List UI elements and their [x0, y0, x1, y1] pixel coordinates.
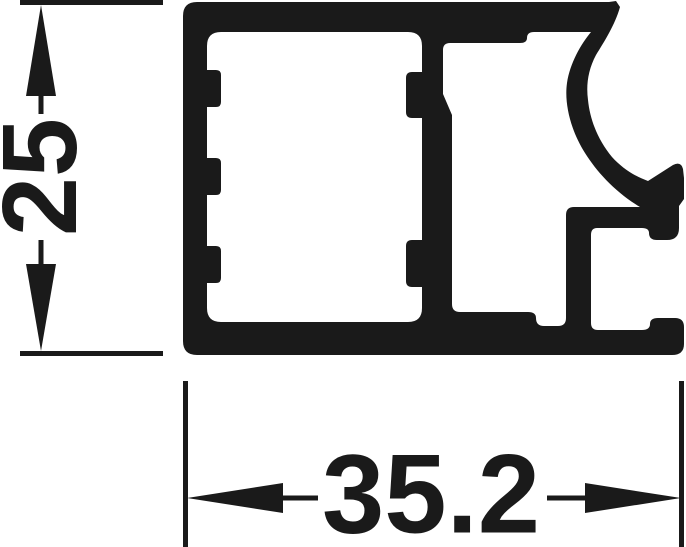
dimension-arrow-down-icon: [26, 264, 56, 351]
height-dimension-label: 25: [0, 118, 99, 236]
dimension-arrow-right-icon: [585, 483, 681, 513]
profile-drawing-canvas: 25 35.2: [0, 0, 686, 547]
width-dimension: 35.2: [183, 381, 684, 547]
profile-drawing-page: 25 35.2: [0, 0, 686, 547]
dimension-arrow-up-icon: [26, 5, 56, 96]
width-extension-line-right: [679, 381, 684, 547]
width-dimension-label: 35.2: [322, 432, 540, 547]
width-dimension-line-right: [547, 496, 589, 501]
profile-cross-section-shape: [183, 1, 684, 355]
height-dimension: 25: [0, 0, 163, 356]
dimension-arrow-left-icon: [187, 483, 283, 513]
height-extension-line-top: [20, 0, 163, 5]
width-extension-line-left: [183, 381, 188, 547]
height-dimension-line-upper: [39, 92, 44, 114]
height-dimension-line-lower: [39, 240, 44, 268]
height-extension-line-bottom: [20, 351, 163, 356]
width-dimension-line-left: [280, 496, 318, 501]
